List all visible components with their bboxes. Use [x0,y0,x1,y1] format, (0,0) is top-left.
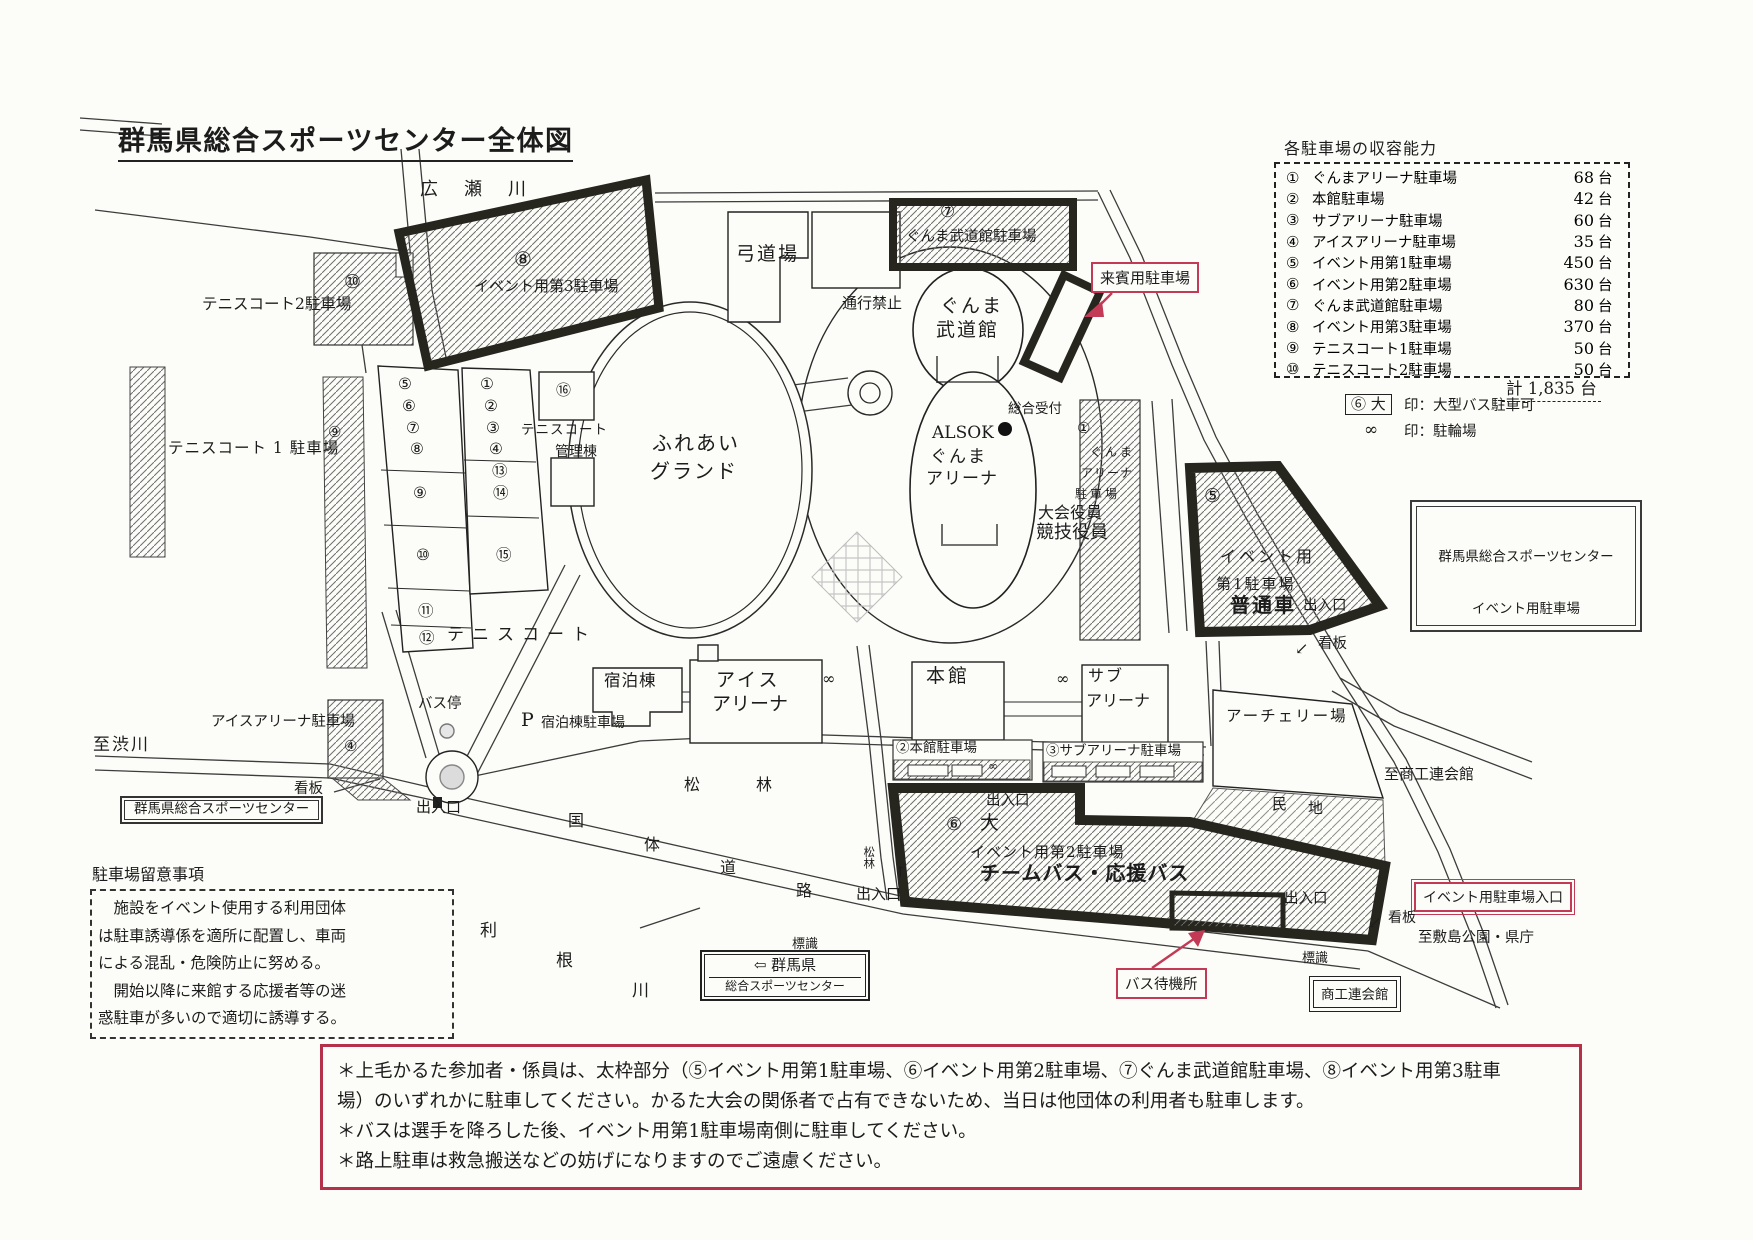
lot5-label-1: イベント用 [1220,548,1315,566]
legend-row: ⑨テニスコート1駐車場50台 [1286,337,1620,358]
court-left-0: ⑤ [398,376,412,394]
right-sign-line2: イベント用駐車場 [1412,602,1640,618]
right-sign-line1: 群馬県総合スポーツセンター [1412,550,1640,566]
legend-row: ⑥イベント用第2駐車場630台 [1286,273,1620,294]
bike-mark-lot2: ∞ [988,760,998,774]
kokutai-road-1: 国 [568,812,584,830]
arena-label-3: アリーナ [926,470,998,490]
court-left-4: ⑨ [413,485,427,503]
minchi-label-1: 民 [1272,796,1287,813]
lot10-number: ⑩ [344,272,361,294]
caution-line: は駐車誘導係を適所に配置し、車両 [98,923,446,951]
court-left-7: ⑫ [419,630,435,648]
bottom-sign-box: ⇦ 群馬県 総合スポーツセンター [700,950,870,1001]
reception-dot [998,422,1012,436]
signboard-arrow-bottomright: ↙ [1368,914,1381,932]
lot4-label: アイスアリーナ駐車場 [211,714,355,731]
court-right-0: ① [480,376,494,394]
lot2-label: ②本館駐車場 [896,741,977,757]
officials-label-1: 大会役員 [1038,504,1102,522]
tone-river-1: 利 [480,922,497,942]
hyoshiki-label-right: 標識 [1302,952,1328,967]
lot5-number: ⑤ [1204,486,1221,508]
court-left-2: ⑦ [406,420,420,438]
lot4-number: ④ [344,738,357,755]
lot7-number: ⑦ [940,203,955,223]
caution-line: 施設をイベント使用する利用団体 [98,895,446,923]
shokoren-sign-box: 商工連会館 [1313,980,1397,1008]
lot6-label-2: チームバス・応援バス [980,862,1189,885]
lodge-parking-label: 宿泊棟駐車場 [541,715,625,731]
gate-arrow-bottom: ↑ [894,864,907,881]
pine-label-2: 林 [756,776,772,794]
legend-bike-symbol: ∞ [1364,421,1378,441]
lot1-label-3: 駐車場 [1075,488,1120,502]
caution-line: による混乱・危険防止に努める。 [98,950,446,978]
lot6-gate-label: 出入口 [986,793,1030,810]
to-shokoren-label: 至商工連会館 [1384,766,1474,783]
caution-box: 施設をイベント使用する利用団体 は駐車誘導係を適所に配置し、車両 による混乱・危… [90,889,454,1039]
lot6-bigbus-mark: 大 [980,813,999,835]
budokan-label-2: 武道館 [936,320,999,342]
signboard-label-right: 看板 [1318,636,1347,653]
court-right-5: ⑭ [493,485,509,503]
legend-row: ⑩テニスコート2駐車場50台 [1286,359,1620,380]
caution-line: 開始以降に来館する応援者等の迷 [98,978,446,1006]
legend-row: ⑦ぐんま武道館駐車場80台 [1286,295,1620,316]
bottom-sign-line2: 総合スポーツセンター [709,977,861,994]
gate-label-right: 出入口 [1303,598,1347,615]
honkan-label: 本館 [926,666,970,688]
budokan-label-1: ぐんま [940,296,1003,318]
lodge-parking-p: P [521,710,534,732]
legend-bigbus-symbol: ⑥ 大 [1345,394,1392,415]
legend-row: ④アイスアリーナ駐車場35台 [1286,231,1620,252]
pine-label-1: 松 [684,776,700,794]
court-left-6: ⑪ [418,603,434,621]
notice-line-2: 場）のいずれかに駐車してください。かるた大会の関係者で占有できないため、当日は他… [337,1087,1565,1117]
court-left-5: ⑩ [416,547,430,565]
arena-label-2: ぐんま [930,448,987,468]
lot10-label: テニスコート2駐車場 [202,296,351,314]
legend-row: ⑤イベント用第1駐車場450台 [1286,252,1620,273]
signboard-label-bottomright: 看板 [1388,910,1416,926]
caution-line: 惑駐車が多いので適切に誘導する。 [98,1005,446,1033]
court-right-3: ④ [489,441,503,459]
lot7-label: ぐんま武道館駐車場 [906,229,1037,246]
pine-small-label: 松林 [862,846,875,869]
legend-header: 各駐車場の収容能力 [1284,140,1437,158]
legend-row: ②本館駐車場42台 [1286,188,1620,209]
minchi-label-2: 地 [1308,800,1323,817]
court-left-1: ⑥ [402,398,416,416]
bus-stop-label: バス停 [418,696,462,713]
tone-river-3: 川 [632,982,649,1002]
lot6-gate-label-2: 出入口 [1284,891,1328,908]
right-sign-box: 群馬県総合スポーツセンター イベント用駐車場 [1410,500,1642,632]
bike-mark-sub: ∞ [1056,670,1069,688]
gate-label-bottom: 出入口 [856,886,901,903]
signboard-arrow-right: ↙ [1295,640,1308,658]
tennis-office-label-1: テニスコート [521,423,608,439]
lot1-label-1: ぐんま [1090,446,1135,460]
no-entry-label: 通行禁止 [842,295,902,312]
court-right-1: ② [484,398,498,416]
archery-label: アーチェリー場 [1226,708,1348,726]
lot6-number: ⑥ [946,815,962,836]
sub-arena-label-2: アリーナ [1086,692,1150,710]
ice-arena-label-2: アリーナ [712,694,788,716]
facility-map-page: 群馬県総合スポーツセンター全体図 各駐車場の収容能力 ①ぐんまアリーナ駐車場68… [0,0,1753,1240]
event-entrance-callout: イベント用駐車場入口 [1414,882,1572,912]
court-right-2: ③ [486,420,500,438]
lot1-number: ① [1077,420,1090,437]
kokutai-road-2: 体 [644,836,660,854]
legend-row: ③サブアリーナ駐車場60台 [1286,210,1620,231]
court-left-3: ⑧ [410,441,424,459]
ground-label-2: グランド [650,460,738,483]
lot8-label: イベント用第3駐車場 [474,278,619,295]
page-title: 群馬県総合スポーツセンター全体図 [118,126,573,162]
lot3-label: ③サブアリーナ駐車場 [1046,744,1181,760]
to-shibukawa-label: 至渋川 [93,736,150,756]
tennis-court-label: テニスコート [447,626,597,646]
legend-box: ①ぐんまアリーナ駐車場68台 ②本館駐車場42台 ③サブアリーナ駐車場60台 ④… [1274,162,1630,378]
lodge-label: 宿泊棟 [604,672,657,691]
ice-arena-label-1: アイス [716,670,780,692]
notice-line-3: ＊バスは選手を降ろした後、イベント用第1駐車場南側に駐車してください。 [337,1117,1565,1147]
left-sign-box: 群馬県総合スポーツセンター [120,796,323,824]
officials-label-2: 競技役員 [1036,523,1108,544]
arena-label-1: ALSOK [932,424,994,444]
kyudojo-label: 弓道場 [736,244,799,266]
lot5-label-2: 第1駐車場 [1216,576,1296,593]
legend-bike-note: 印：駐輪場 [1404,424,1477,441]
to-shikishima-label: 至敷島公園・県庁 [1418,930,1534,947]
ground-label-1: ふれあい [652,432,740,455]
sub-arena-label-1: サブ [1088,667,1124,685]
court-right-6: ⑮ [496,547,512,565]
notice-line-4: ＊路上駐車は救急搬送などの妨げになりますのでご遠慮ください。 [337,1147,1565,1177]
kokutai-road-3: 道 [720,859,736,877]
bottom-sign-line1: ⇦ 群馬県 [709,957,861,974]
lot5-label-3: 普通車 [1230,594,1296,617]
lot6-label-1: イベント用第2駐車場 [970,844,1125,861]
gate-label-left: 出入口 [416,799,461,816]
bottom-notice-box: ＊上毛かるた参加者・係員は、太枠部分（⑤イベント用第1駐車場、⑥イベント用第2駐… [320,1044,1582,1190]
shokoren-sign-text: 商工連会館 [1321,987,1389,1003]
tone-river-2: 根 [556,952,573,972]
legend-row: ⑧イベント用第3駐車場370台 [1286,316,1620,337]
tennis-office-label-2: 管理棟 [555,444,597,460]
legend-row: ①ぐんまアリーナ駐車場68台 [1286,167,1620,188]
court-16: ⑯ [556,382,571,399]
lot1-label-2: アリーナ [1081,467,1133,481]
guest-parking-callout: 来賓用駐車場 [1091,262,1199,293]
bus-wait-callout: バス待機所 [1116,968,1207,999]
kokutai-road-4: 路 [796,882,812,900]
bike-mark-ice: ∞ [822,670,835,688]
legend-bigbus-note: 印：大型バス駐車可 [1404,398,1535,415]
reception-label: 総合受付 [1008,402,1062,418]
court-right-4: ⑬ [492,463,508,481]
left-sign-text: 群馬県総合スポーツセンター [124,800,319,820]
caution-title: 駐車場留意事項 [92,866,204,884]
hirose-river-label: 広 瀬 川 [420,180,530,201]
notice-line-1: ＊上毛かるた参加者・係員は、太枠部分（⑤イベント用第1駐車場、⑥イベント用第2駐… [337,1057,1565,1087]
lot8-number: ⑧ [514,248,532,271]
lot9-label: テニスコート 1 駐車場 [168,440,339,458]
